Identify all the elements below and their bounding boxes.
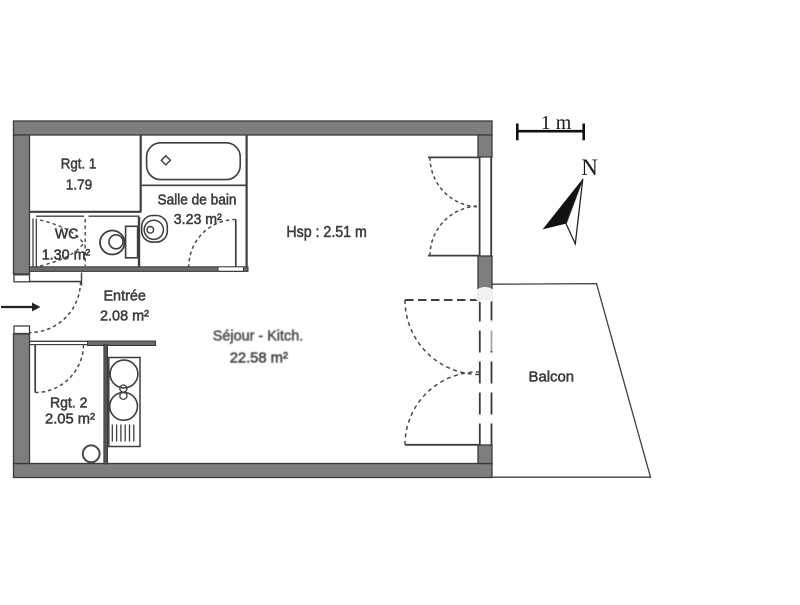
svg-text:2.05 m²: 2.05 m² [45, 411, 95, 428]
svg-text:N: N [581, 155, 598, 180]
svg-text:Salle de bain: Salle de bain [158, 192, 237, 209]
svg-text:1.79: 1.79 [66, 177, 93, 194]
svg-text:1 m: 1 m [541, 112, 572, 134]
svg-text:Hsp : 2.51 m: Hsp : 2.51 m [286, 224, 367, 241]
svg-text:Entrée: Entrée [103, 288, 146, 305]
svg-text:2.08 m²: 2.08 m² [100, 308, 149, 325]
svg-text:22.58 m²: 22.58 m² [230, 350, 288, 367]
svg-text:Rgt. 1: Rgt. 1 [61, 156, 97, 173]
svg-text:3.23 m²: 3.23 m² [174, 211, 222, 228]
svg-text:WC: WC [55, 226, 79, 243]
svg-text:Rgt. 2: Rgt. 2 [50, 395, 88, 412]
svg-text:Séjour - Kitch.: Séjour - Kitch. [213, 328, 304, 345]
svg-text:Balcon: Balcon [529, 369, 575, 386]
svg-text:1.30 m²: 1.30 m² [42, 247, 91, 264]
